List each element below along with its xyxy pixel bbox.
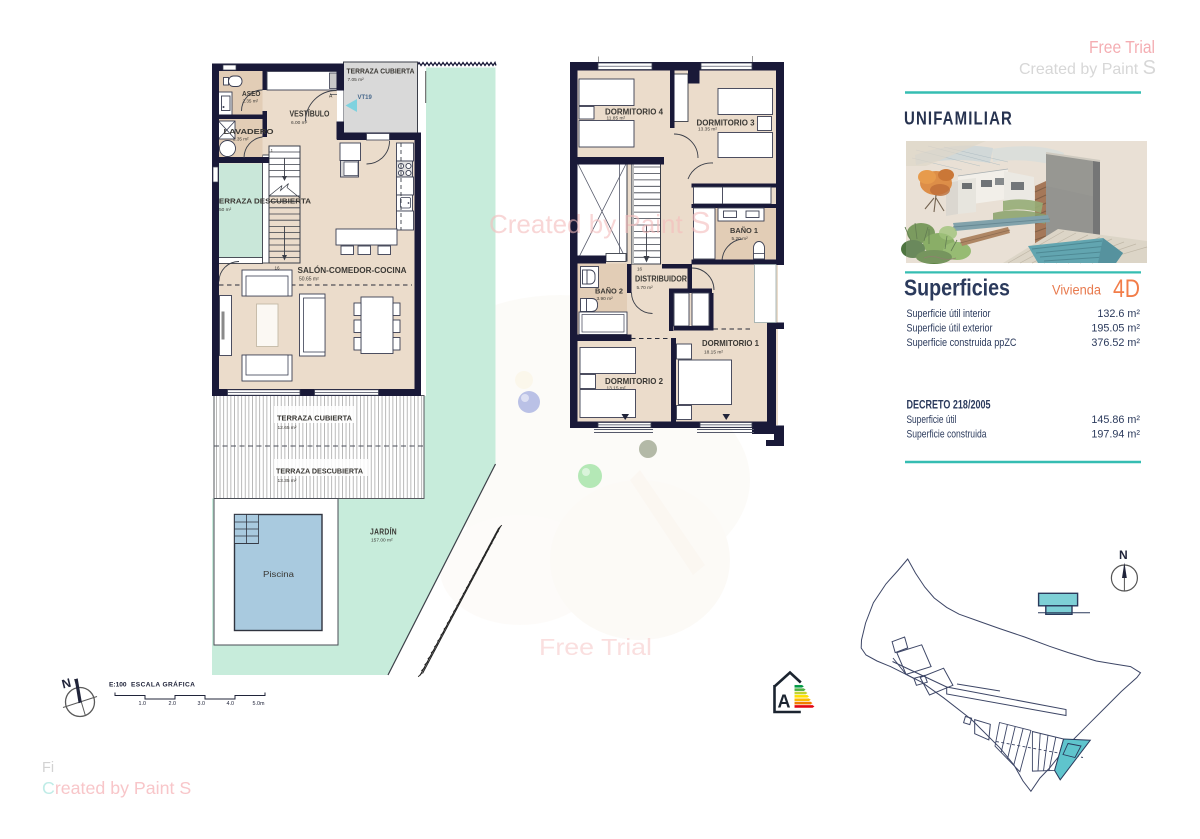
svg-text:E:100: E:100 bbox=[109, 682, 127, 689]
svg-text:SALÓN-COMEDOR-COCINA: SALÓN-COMEDOR-COCINA bbox=[298, 264, 407, 275]
svg-text:4.0: 4.0 bbox=[227, 701, 235, 707]
svg-text:Piscina: Piscina bbox=[263, 570, 295, 579]
svg-text:5.70 m²: 5.70 m² bbox=[637, 285, 654, 291]
svg-text:LAVADERO: LAVADERO bbox=[224, 127, 274, 136]
svg-text:Vivienda: Vivienda bbox=[1052, 283, 1101, 299]
svg-text:2.35 m²: 2.35 m² bbox=[243, 99, 259, 104]
svg-text:DORMITORIO 2: DORMITORIO 2 bbox=[605, 376, 663, 386]
svg-text:376.52 m²: 376.52 m² bbox=[1091, 337, 1140, 349]
svg-text:3.0: 3.0 bbox=[198, 701, 206, 707]
svg-text:7.05 m²: 7.05 m² bbox=[348, 77, 365, 83]
svg-text:TERRAZA CUBIERTA: TERRAZA CUBIERTA bbox=[347, 67, 416, 76]
svg-text:11.85 m²: 11.85 m² bbox=[607, 116, 626, 122]
svg-text:18.15 m²: 18.15 m² bbox=[704, 350, 723, 356]
svg-text:DORMITORIO 4: DORMITORIO 4 bbox=[605, 107, 663, 117]
svg-text:DECRETO 218/2005: DECRETO 218/2005 bbox=[907, 399, 991, 412]
svg-text:16: 16 bbox=[637, 267, 643, 272]
svg-text:Fi: Fi bbox=[42, 760, 54, 776]
svg-text:A: A bbox=[778, 692, 791, 712]
svg-text:13.35 m²: 13.35 m² bbox=[698, 127, 717, 133]
svg-text:195.05 m²: 195.05 m² bbox=[1091, 323, 1140, 335]
svg-text:197.94 m²: 197.94 m² bbox=[1091, 429, 1140, 441]
svg-text:TERRAZA DESCUBIERTA: TERRAZA DESCUBIERTA bbox=[214, 197, 312, 206]
svg-text:2.35 m²: 2.35 m² bbox=[233, 137, 249, 142]
svg-text:Free Trial: Free Trial bbox=[539, 634, 652, 660]
svg-text:Superficie útil exterior: Superficie útil exterior bbox=[907, 323, 993, 335]
svg-text:VT19: VT19 bbox=[358, 95, 373, 101]
svg-text:UNIFAMILIAR: UNIFAMILIAR bbox=[904, 108, 1013, 129]
svg-text:Created by Paint S: Created by Paint S bbox=[1019, 57, 1156, 79]
svg-text:1: 1 bbox=[271, 148, 274, 153]
svg-text:145.86 m²: 145.86 m² bbox=[1091, 414, 1140, 426]
svg-text:VESTÍBULO: VESTÍBULO bbox=[290, 110, 330, 119]
svg-text:Superficie útil: Superficie útil bbox=[907, 414, 957, 426]
svg-text:ASEO: ASEO bbox=[242, 91, 261, 98]
svg-text:50.65 m²: 50.65 m² bbox=[299, 277, 319, 283]
svg-text:Superficies: Superficies bbox=[904, 275, 1010, 301]
svg-text:DORMITORIO 3: DORMITORIO 3 bbox=[697, 118, 755, 128]
svg-text:1.0: 1.0 bbox=[139, 701, 147, 707]
svg-text:Superficie construida ppZC: Superficie construida ppZC bbox=[907, 337, 1017, 349]
svg-text:TERRAZA CUBIERTA: TERRAZA CUBIERTA bbox=[277, 414, 353, 423]
svg-text:DISTRIBUIDOR: DISTRIBUIDOR bbox=[635, 274, 687, 284]
svg-text:157.00 m²: 157.00 m² bbox=[371, 538, 393, 544]
svg-text:BAÑO 2: BAÑO 2 bbox=[595, 287, 623, 296]
svg-text:5.0m: 5.0m bbox=[253, 701, 265, 707]
svg-text:TERRAZA DESCUBIERTA: TERRAZA DESCUBIERTA bbox=[276, 467, 364, 476]
svg-text:Superficie construida: Superficie construida bbox=[907, 429, 987, 441]
svg-text:3.90 m²: 3.90 m² bbox=[597, 296, 614, 302]
svg-text:13.35 m²: 13.35 m² bbox=[278, 478, 297, 484]
svg-text:DORMITORIO 1: DORMITORIO 1 bbox=[702, 338, 759, 348]
svg-text:ESCALA GRÁFICA: ESCALA GRÁFICA bbox=[131, 680, 195, 689]
svg-text:Free Trial: Free Trial bbox=[1089, 37, 1155, 57]
svg-text:BAÑO 1: BAÑO 1 bbox=[730, 226, 759, 235]
svg-text:JARDÍN: JARDÍN bbox=[370, 527, 397, 537]
svg-text:13.15 m²: 13.15 m² bbox=[607, 386, 626, 392]
svg-text:Created by Paint S: Created by Paint S bbox=[42, 778, 191, 798]
svg-text:Created by Paint S: Created by Paint S bbox=[489, 205, 711, 240]
svg-text:132.6 m²: 132.6 m² bbox=[1097, 308, 1140, 320]
svg-text:N: N bbox=[1119, 548, 1128, 562]
svg-text:4D: 4D bbox=[1113, 275, 1140, 303]
svg-text:12.65 m²: 12.65 m² bbox=[278, 425, 297, 431]
svg-text:2.0: 2.0 bbox=[169, 701, 177, 707]
svg-text:Superficie útil interior: Superficie útil interior bbox=[907, 308, 991, 320]
